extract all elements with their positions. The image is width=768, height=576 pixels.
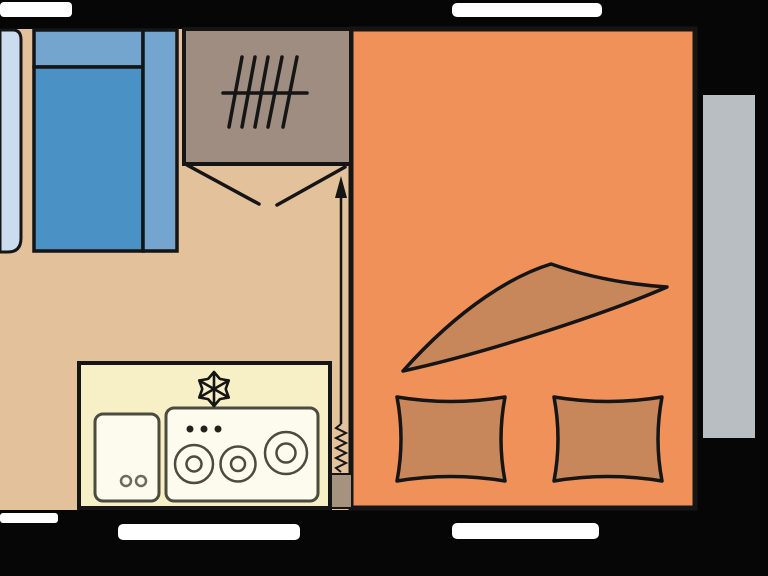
window-bottom-middle — [118, 524, 300, 540]
pillow-left — [397, 397, 505, 481]
window-top-right — [452, 3, 602, 17]
floorplan-canvas — [0, 0, 768, 576]
window-bottom-left — [0, 513, 58, 523]
stove-knob — [215, 426, 222, 433]
seat-side-rest — [143, 30, 177, 251]
sink-hole — [136, 476, 146, 486]
pillow-right — [554, 397, 662, 481]
wardrobe — [184, 29, 351, 164]
stove-knob — [187, 426, 194, 433]
heater-unit — [330, 474, 352, 508]
seating-group — [34, 30, 177, 251]
seat-backrest — [34, 30, 143, 67]
window-top-left — [0, 2, 72, 17]
entry-door-panel — [703, 95, 755, 438]
stove-knob — [201, 426, 208, 433]
window-bottom-right — [452, 523, 599, 539]
stove-knobs — [187, 426, 222, 433]
sink-hole — [121, 476, 131, 486]
seat-cushion — [34, 67, 143, 251]
caravan-floorplan — [0, 0, 768, 576]
sink — [95, 414, 159, 501]
dinette-table — [0, 30, 21, 252]
